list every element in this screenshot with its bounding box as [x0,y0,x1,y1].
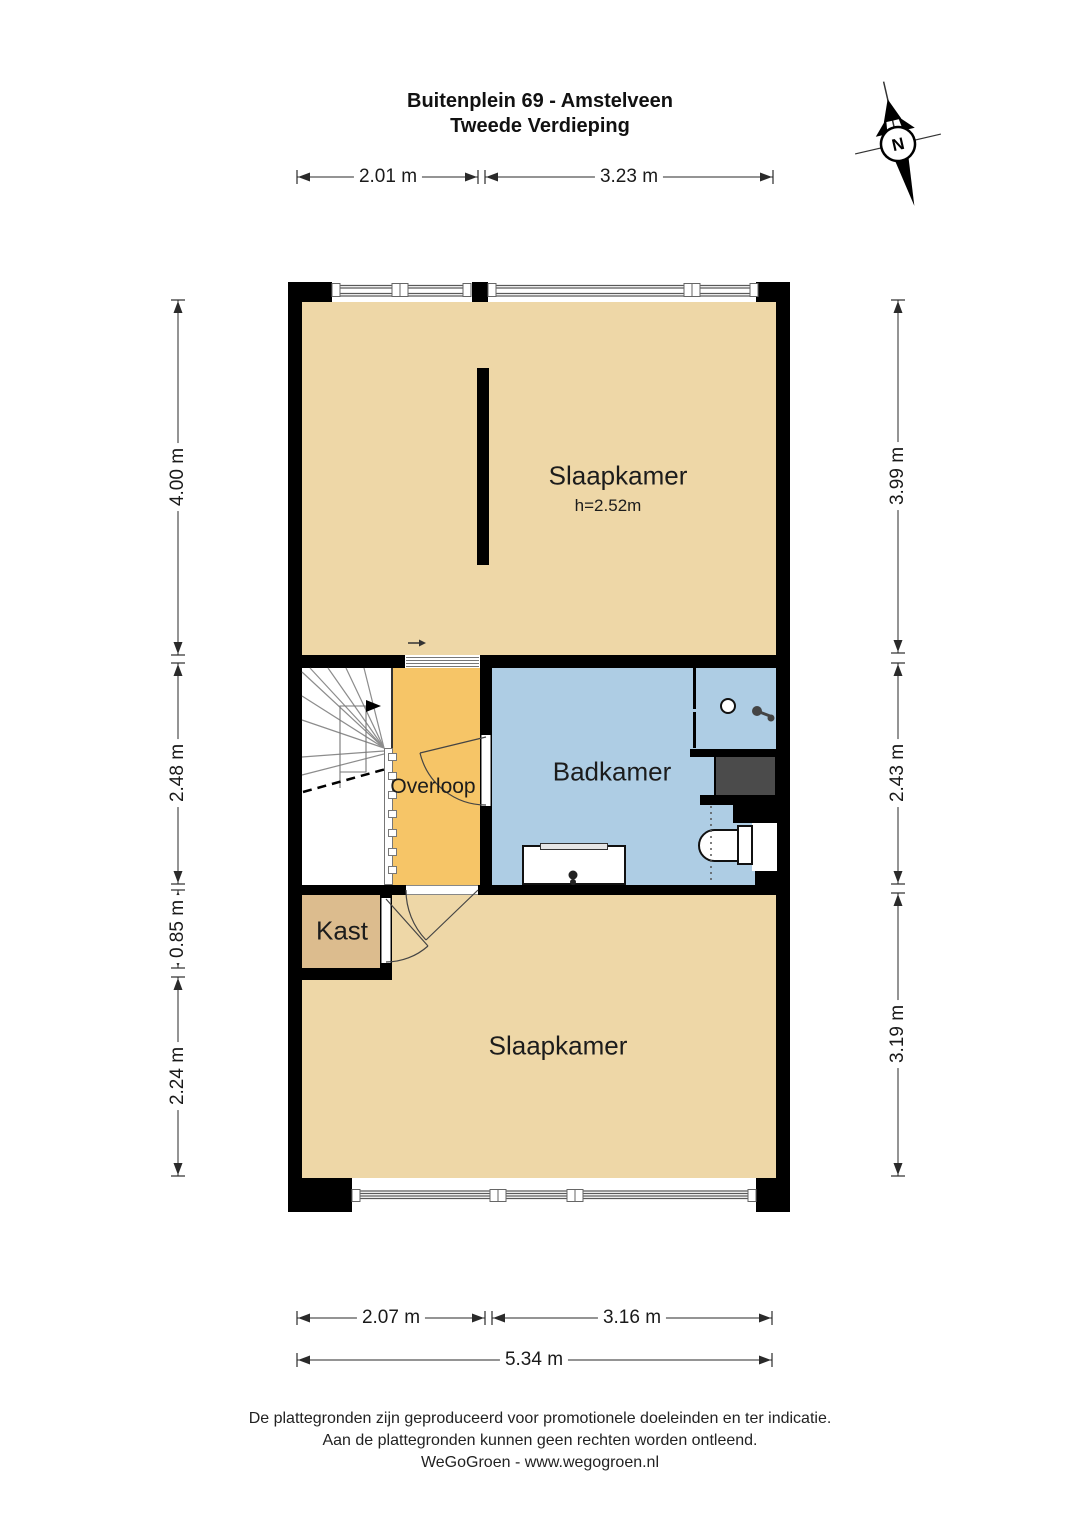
dimension-label: 2.48 m [167,739,189,807]
dimension-label: 3.19 m [887,1000,909,1068]
dimension-linework [0,0,1080,1527]
floorplan-page: Buitenplein 69 - Amstelveen Tweede Verdi… [0,0,1080,1527]
dimension-label: 3.99 m [887,442,909,510]
dimension-label: 3.23 m [595,166,663,188]
footer-disclaimer-1: De plattegronden zijn geproduceerd voor … [0,1410,1080,1428]
label-bedroom-bottom: Slaapkamer [489,1031,628,1062]
dimension-label: 5.34 m [500,1349,568,1371]
dimension-label: 2.24 m [167,1042,189,1110]
footer-credit: WeGoGroen - www.wegogroen.nl [0,1454,1080,1472]
footer-disclaimer-2: Aan de plattegronden kunnen geen rechten… [0,1432,1080,1450]
dimension-label: 2.07 m [357,1307,425,1329]
dimension-label: 0.85 m [167,895,189,963]
dimension-label: 3.16 m [598,1307,666,1329]
label-closet: Kast [316,916,368,947]
label-bathroom: Badkamer [553,757,672,788]
label-ceiling-height: h=2.52m [575,496,642,516]
dimension-label: 2.01 m [354,166,422,188]
compass-rose: N [838,72,958,212]
label-landing: Overloop [390,775,475,799]
dimension-label: 4.00 m [167,443,189,511]
dimension-label: 2.43 m [887,739,909,807]
label-bedroom-top: Slaapkamer [549,461,688,492]
